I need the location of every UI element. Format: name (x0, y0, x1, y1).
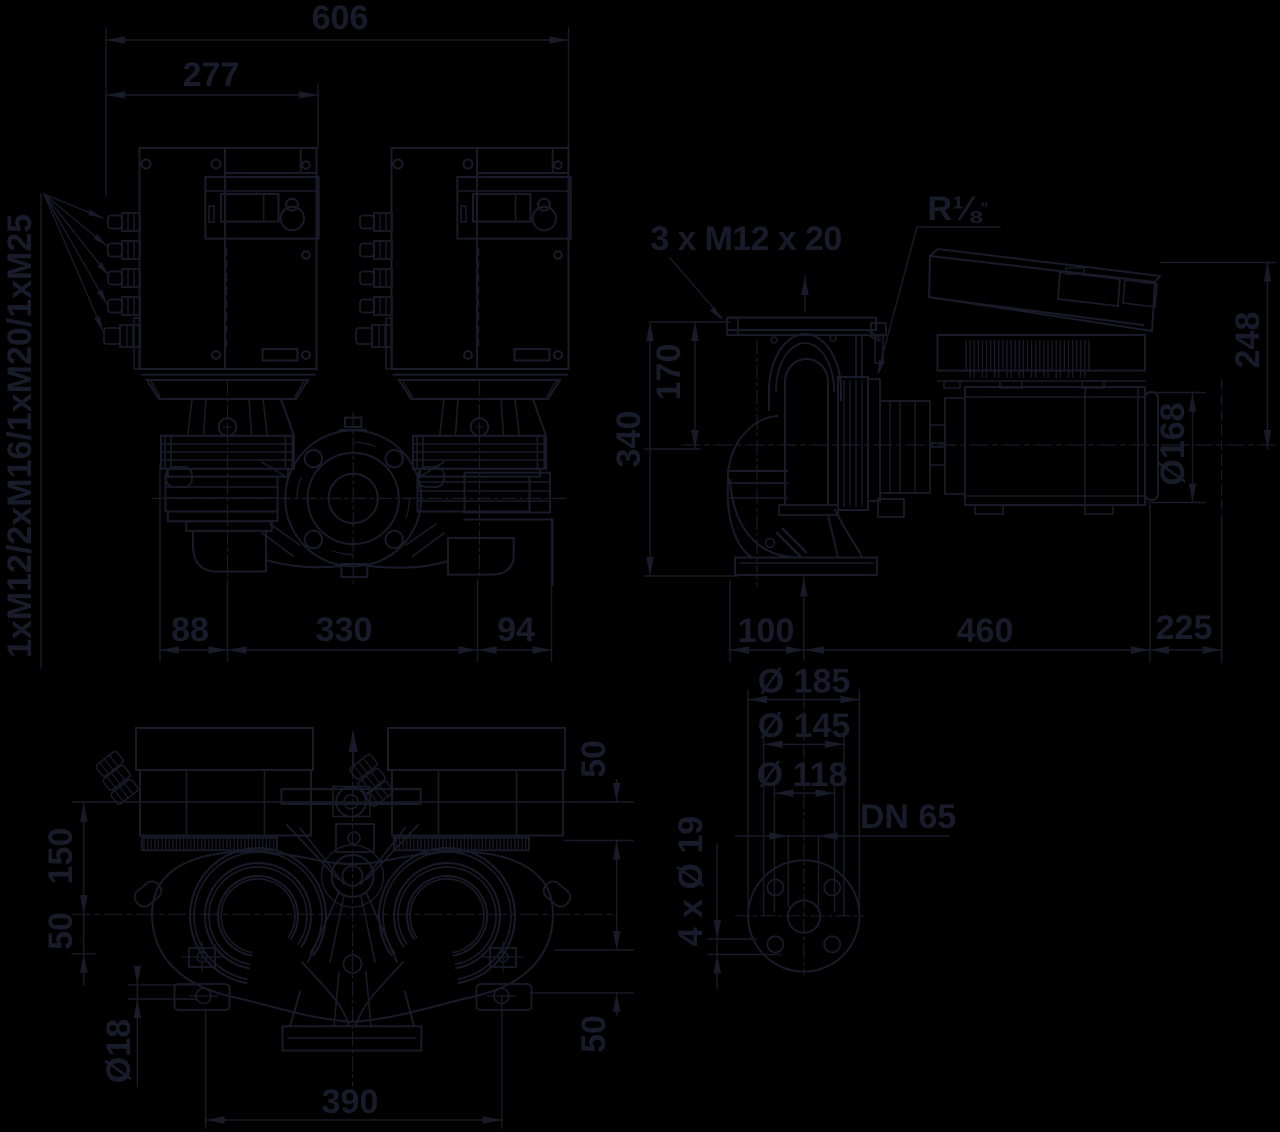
svg-text:50: 50 (575, 1015, 613, 1053)
svg-text:277: 277 (183, 56, 240, 94)
svg-text:460: 460 (957, 612, 1014, 650)
svg-text:50: 50 (575, 740, 613, 778)
svg-text:50: 50 (42, 912, 80, 950)
svg-text:170: 170 (650, 344, 688, 401)
svg-text:Ø168: Ø168 (1154, 402, 1192, 485)
svg-text:DN 65: DN 65 (860, 798, 956, 836)
svg-text:3 x M12 x 20: 3 x M12 x 20 (650, 220, 841, 258)
svg-text:R⅛": R⅛" (928, 190, 989, 228)
svg-text:Ø18: Ø18 (100, 1019, 138, 1083)
svg-text:390: 390 (322, 1083, 379, 1121)
svg-text:88: 88 (171, 611, 209, 649)
svg-text:4 x Ø 19: 4 x Ø 19 (672, 816, 710, 946)
svg-text:150: 150 (42, 828, 80, 885)
svg-text:340: 340 (610, 411, 648, 468)
svg-text:225: 225 (1156, 609, 1213, 647)
svg-text:330: 330 (316, 611, 373, 649)
svg-text:248: 248 (1229, 312, 1267, 369)
svg-text:606: 606 (312, 0, 369, 37)
svg-text:94: 94 (497, 611, 535, 649)
svg-text:Ø 118: Ø 118 (757, 756, 848, 794)
svg-text:1xM12/2xM16/1xM20/1xM25: 1xM12/2xM16/1xM20/1xM25 (1, 214, 39, 658)
svg-text:100: 100 (738, 612, 795, 650)
